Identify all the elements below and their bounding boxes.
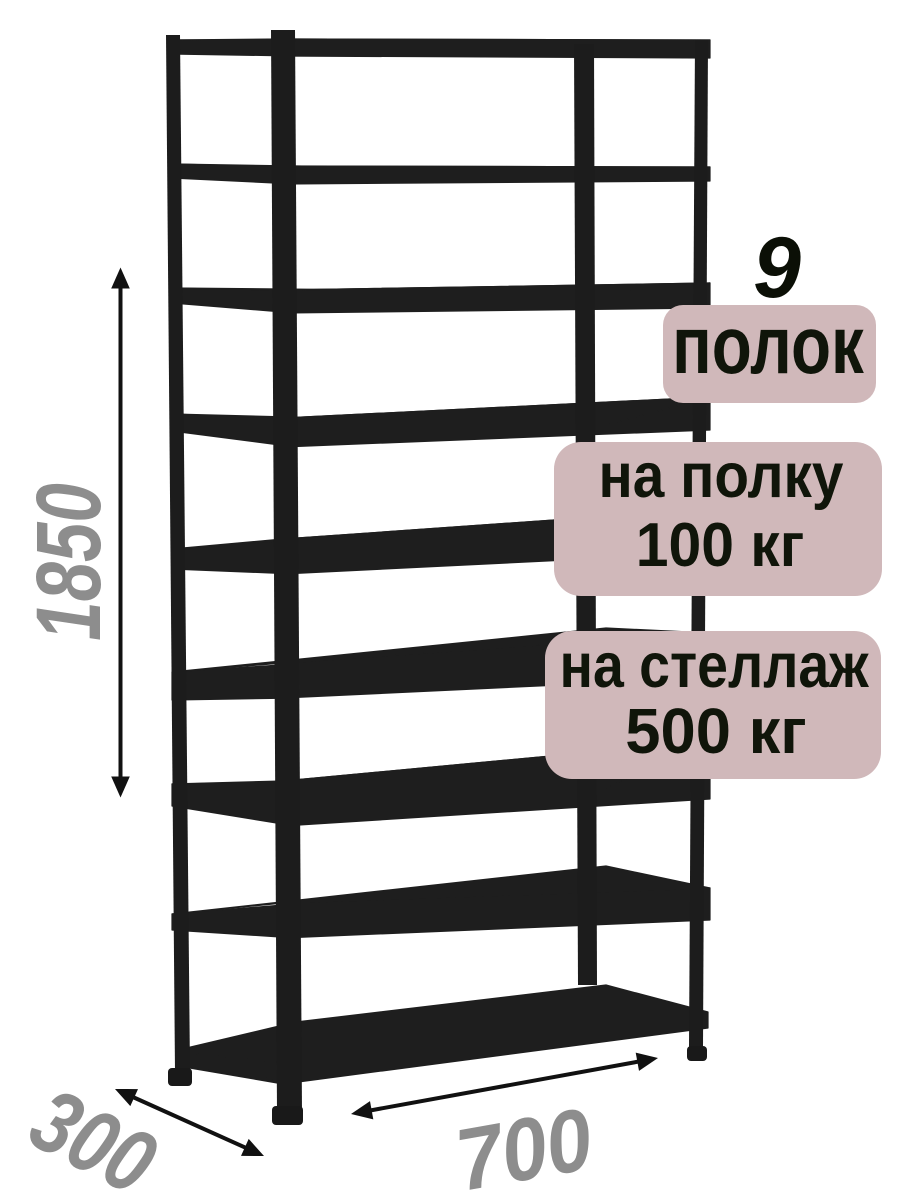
svg-text:на полку: на полку [599, 440, 844, 510]
svg-text:1850: 1850 [18, 483, 120, 641]
svg-text:300: 300 [16, 1070, 171, 1200]
svg-text:700: 700 [449, 1089, 599, 1200]
svg-text:100 кг: 100 кг [636, 510, 805, 580]
svg-text:на стеллаж: на стеллаж [559, 630, 869, 701]
svg-text:полок: полок [672, 299, 865, 391]
svg-text:500 кг: 500 кг [625, 696, 806, 767]
